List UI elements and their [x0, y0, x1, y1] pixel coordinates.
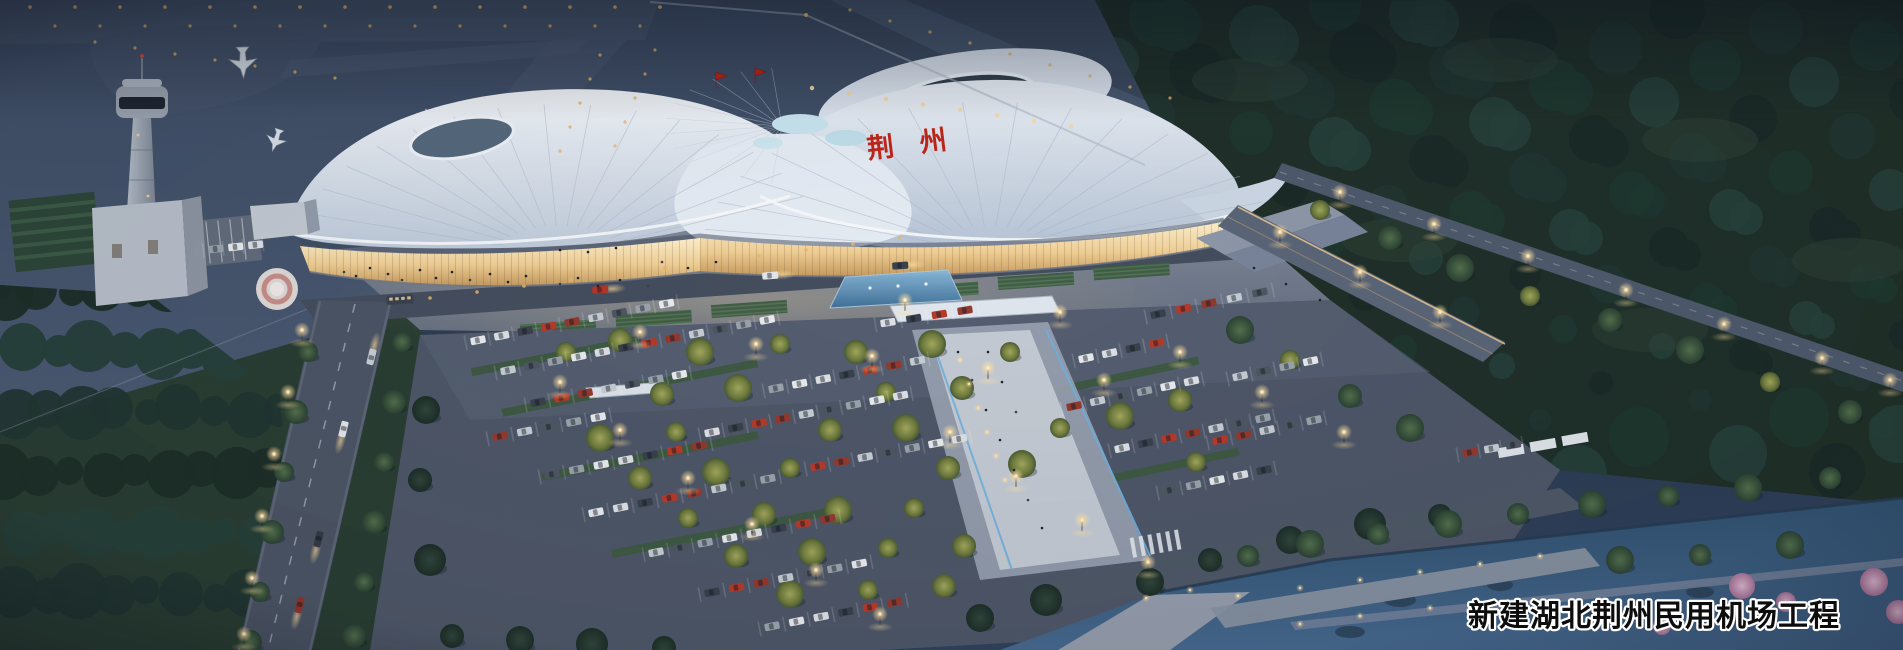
airport-night-rendering: 荆州 新建湖北荆州民用机场工程: [0, 0, 1903, 650]
project-caption: 新建湖北荆州民用机场工程: [1468, 599, 1840, 634]
scene-svg: 荆州 新建湖北荆州民用机场工程: [0, 0, 1903, 650]
top-shade: [0, 0, 1903, 120]
